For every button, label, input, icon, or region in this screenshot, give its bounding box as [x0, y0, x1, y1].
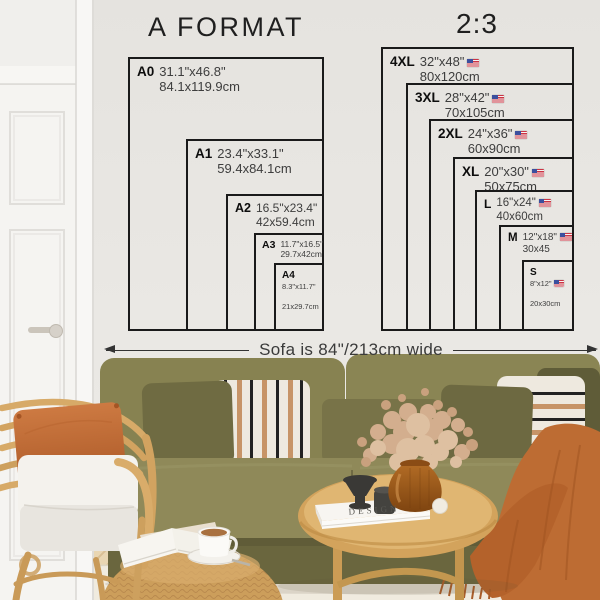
size-label-4xl: 4XL 32"x48"80x120cm	[383, 49, 572, 85]
arrow-left-icon	[106, 350, 249, 351]
poster-size-guide-image: A FORMAT 2:3 A0 31.1"x46.8"84.1x119.9cm …	[0, 0, 600, 600]
size-label-a0: A0 31.1"x46.8"84.1x119.9cm	[130, 59, 322, 95]
sofa-width-annotation: Sofa is 84"/213cm wide	[106, 340, 596, 360]
us-flag-icon	[532, 169, 544, 177]
size-label-3xl: 3XL 28"x42"70x105cm	[408, 85, 572, 121]
us-flag-icon	[467, 59, 479, 67]
size-label-a3: A3 11.7"x16.5"29.7x42cm	[256, 235, 322, 259]
arrow-right-icon	[453, 350, 596, 351]
size-frame-s: S 8"x12"20x30cm	[522, 260, 574, 331]
chair-cushion-white	[18, 455, 138, 551]
size-label-s: S 8"x12"20x30cm	[524, 262, 572, 308]
us-flag-icon	[492, 95, 504, 103]
size-label-a2: A2 16.5"x23.4"42x59.4cm	[228, 196, 322, 229]
us-flag-icon	[554, 280, 564, 287]
sofa-width-label: Sofa is 84"/213cm wide	[259, 340, 443, 360]
us-flag-icon	[539, 199, 551, 207]
size-label-m: M 12"x18"30x45	[501, 227, 572, 256]
size-label-a4: A4 8.3"x11.7"21x29.7cm	[276, 265, 322, 311]
decor-ball	[433, 499, 448, 514]
size-label-l: L 16"x24"40x60cm	[477, 192, 572, 224]
size-label-2xl: 2XL 24"x36"60x90cm	[431, 121, 572, 157]
olive-pillow-left	[142, 380, 235, 467]
size-frame-a4: A4 8.3"x11.7"21x29.7cm	[274, 263, 324, 331]
us-flag-icon	[515, 131, 527, 139]
us-flag-icon	[560, 233, 572, 241]
ratio-title: 2:3	[377, 8, 577, 40]
a-format-title: A FORMAT	[101, 12, 351, 43]
size-label-a1: A1 23.4"x33.1"59.4x84.1cm	[188, 141, 322, 177]
